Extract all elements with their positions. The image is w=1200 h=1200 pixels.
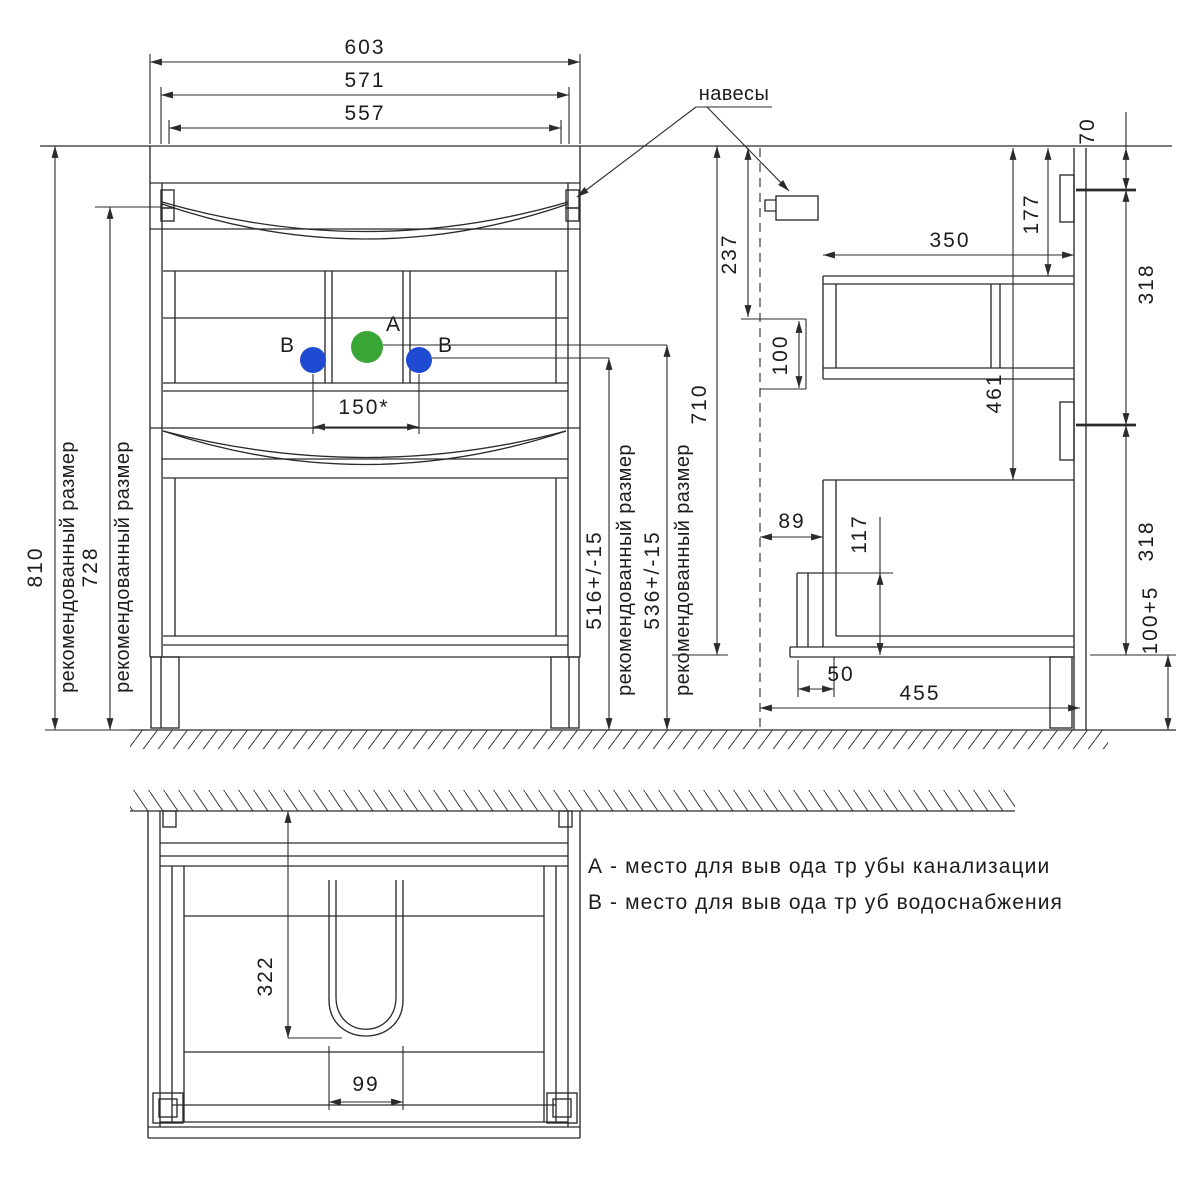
dim-drain-height: 536+/-15	[641, 530, 664, 630]
rec-size-label-4: рекомендованный размер	[672, 444, 694, 696]
callout-hangers: навесы	[699, 83, 769, 105]
dim-front-clearance: 89	[778, 510, 805, 533]
dim-leg-setback: 50	[827, 663, 854, 686]
front-legs	[151, 657, 579, 728]
rec-size-label-1: рекомендованный размер	[57, 441, 79, 693]
dim-lower-top: 461	[983, 372, 1006, 413]
side-leg	[1050, 657, 1072, 728]
legend-line-b: В - место для выв ода тр уб водоснабжени…	[588, 891, 1063, 914]
dim-toe-height: 117	[848, 514, 871, 553]
dim-upper-front-height: 177	[1020, 193, 1043, 234]
drain-a-marker	[351, 331, 383, 363]
dim-cutout-depth: 322	[254, 955, 277, 996]
rec-size-label-2: рекомендованный размер	[112, 441, 134, 693]
water-b-right-marker	[406, 347, 432, 373]
label-drain-a: A	[386, 313, 400, 336]
hanger-block	[765, 196, 818, 220]
dim-cutout-width: 99	[352, 1073, 379, 1096]
dim-width-body: 571	[344, 69, 385, 92]
dim-width-inner: 557	[344, 102, 385, 125]
dim-top-offset: 70	[1076, 117, 1099, 144]
sink-curve-inner	[162, 204, 568, 239]
dim-upper-depth: 350	[929, 229, 970, 252]
dim-pipe-zone: 100	[769, 334, 792, 375]
water-b-left-marker	[300, 347, 326, 373]
dim-pipe-spacing: 150*	[338, 396, 389, 419]
hangers-leader-left	[577, 107, 696, 197]
siphon-cutout-inner	[336, 880, 396, 1029]
rec-size-label-3: рекомендованный размер	[614, 444, 636, 696]
dim-lower-section: 318	[1135, 520, 1158, 561]
dim-water-height: 516+/-15	[583, 530, 606, 630]
dim-height-recommended: 810	[24, 546, 47, 587]
drawing-page: A B B 603 571 557 810 рекомендованный ра…	[0, 0, 1200, 1200]
dim-leg-height: 100+5	[1139, 586, 1162, 655]
drawer-curve-outer	[163, 431, 566, 458]
technical-drawing: A B B 603 571 557 810 рекомендованный ра…	[0, 0, 1200, 1200]
dim-bracket-drop: 237	[718, 233, 741, 274]
dim-height-mount: 728	[79, 546, 102, 587]
plan-feet	[153, 1093, 577, 1123]
front-view: A B B	[40, 146, 1172, 728]
siphon-cutout-outer	[329, 880, 403, 1036]
legend-line-a: А - место для выв ода тр убы канализации	[588, 855, 1050, 878]
floor	[130, 730, 1176, 749]
legend: А - место для выв ода тр убы канализации…	[588, 855, 1063, 914]
plan-wall	[130, 790, 1015, 811]
dim-upper-section: 318	[1135, 263, 1158, 304]
sink-curve-outer	[162, 202, 568, 232]
dim-depth-total: 455	[899, 682, 940, 705]
mounting-plates	[1060, 175, 1074, 460]
dim-width-total: 603	[344, 36, 385, 59]
dim-cabinet-height: 710	[688, 383, 711, 424]
plan-hangers	[163, 811, 572, 827]
label-water-b-left: B	[280, 334, 294, 357]
